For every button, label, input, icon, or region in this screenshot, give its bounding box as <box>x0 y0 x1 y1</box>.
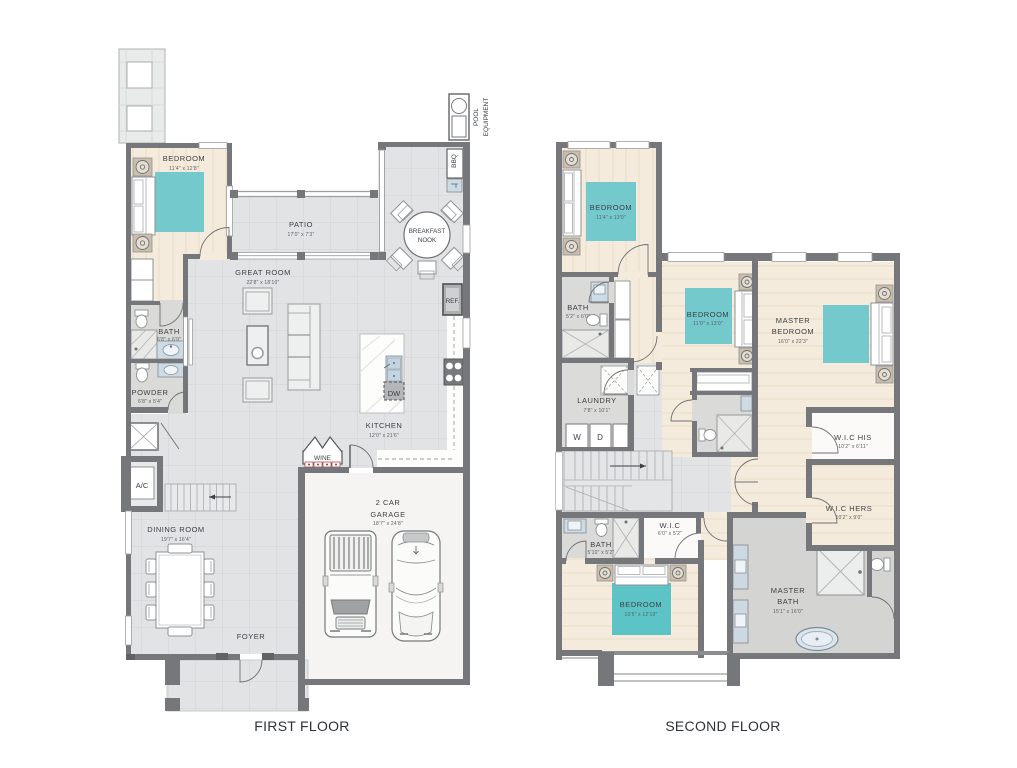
svg-text:6'8" x 6'9": 6'8" x 6'9" <box>157 337 181 343</box>
svg-text:KITCHEN: KITCHEN <box>366 421 403 430</box>
svg-text:16'0" x 22'3": 16'0" x 22'3" <box>778 339 808 345</box>
svg-text:BATH: BATH <box>777 597 799 606</box>
svg-text:BEDROOM: BEDROOM <box>590 203 632 212</box>
svg-text:6'8" x 5'4": 6'8" x 5'4" <box>138 399 162 405</box>
svg-text:BATH: BATH <box>590 540 612 549</box>
svg-text:2 CAR: 2 CAR <box>376 498 401 507</box>
svg-text:REF.: REF. <box>445 298 459 305</box>
svg-text:7'8" x 10'1": 7'8" x 10'1" <box>583 408 610 414</box>
svg-text:FIRST FLOOR: FIRST FLOOR <box>254 718 349 734</box>
svg-text:BEDROOM: BEDROOM <box>163 154 205 163</box>
svg-text:POWDER: POWDER <box>132 388 169 397</box>
svg-text:DW: DW <box>388 389 401 398</box>
svg-text:10'5" x 12'10": 10'5" x 12'10" <box>624 612 657 618</box>
svg-text:12'0" x 21'6": 12'0" x 21'6" <box>369 433 399 439</box>
svg-text:18'7" x 24'8": 18'7" x 24'8" <box>373 521 403 527</box>
svg-text:11'4" x 12'8": 11'4" x 12'8" <box>169 166 199 172</box>
svg-text:22'8" x 18'10": 22'8" x 18'10" <box>246 280 279 286</box>
svg-text:15'1" x 16'0": 15'1" x 16'0" <box>773 609 803 615</box>
svg-text:D: D <box>597 433 603 442</box>
svg-text:5'2" x 6'0": 5'2" x 6'0" <box>566 314 590 320</box>
svg-text:17'0" x 7'3": 17'0" x 7'3" <box>287 232 314 238</box>
svg-text:10'2" x 9'0": 10'2" x 9'0" <box>835 515 862 521</box>
svg-text:BREAKFAST: BREAKFAST <box>409 228 446 235</box>
svg-text:SECOND FLOOR: SECOND FLOOR <box>665 718 780 734</box>
svg-text:MASTER: MASTER <box>776 316 810 325</box>
svg-text:5'10" x 5'2": 5'10" x 5'2" <box>587 550 614 556</box>
svg-text:PATIO: PATIO <box>289 220 313 229</box>
svg-text:BEDROOM: BEDROOM <box>772 327 814 336</box>
svg-text:POOL: POOL <box>473 108 480 126</box>
svg-text:BEDROOM: BEDROOM <box>620 600 662 609</box>
svg-text:DINING ROOM: DINING ROOM <box>147 525 204 534</box>
svg-text:A/C: A/C <box>136 481 149 490</box>
svg-text:11'4" x 13'0": 11'4" x 13'0" <box>596 215 626 221</box>
svg-text:WINE: WINE <box>314 455 332 462</box>
svg-text:BATH: BATH <box>567 303 589 312</box>
svg-text:GREAT ROOM: GREAT ROOM <box>235 268 291 277</box>
svg-text:6'0" x 5'2": 6'0" x 5'2" <box>658 531 682 537</box>
svg-text:W.I.C: W.I.C <box>660 521 681 530</box>
svg-text:19'7" x 16'4": 19'7" x 16'4" <box>161 537 191 543</box>
svg-text:W.I.C HIS: W.I.C HIS <box>834 433 872 442</box>
svg-text:FOYER: FOYER <box>237 632 266 641</box>
svg-text:EQUIPMENT: EQUIPMENT <box>483 98 490 137</box>
svg-text:BATH: BATH <box>158 327 180 336</box>
svg-text:11'0" x 13'0": 11'0" x 13'0" <box>693 321 723 327</box>
svg-text:BEDROOM: BEDROOM <box>687 310 729 319</box>
svg-text:10'2" x 6'11": 10'2" x 6'11" <box>838 444 868 450</box>
svg-text:W: W <box>573 433 581 442</box>
svg-text:NOOK: NOOK <box>418 237 437 244</box>
svg-text:GARAGE: GARAGE <box>370 510 405 519</box>
svg-text:LAUNDRY: LAUNDRY <box>577 396 616 405</box>
svg-text:BBQ: BBQ <box>451 154 458 168</box>
svg-text:MASTER: MASTER <box>771 586 805 595</box>
